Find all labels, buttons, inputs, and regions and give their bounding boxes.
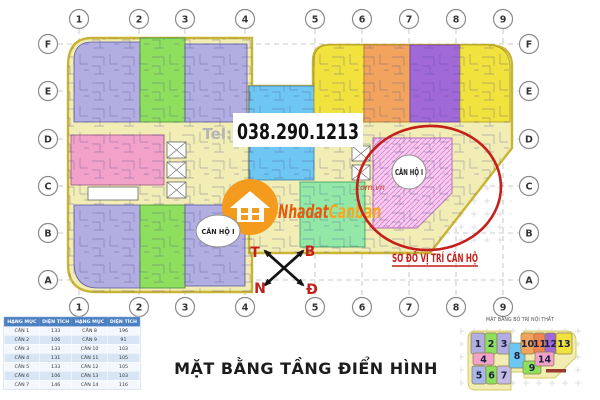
table-cell: 196 [107,326,140,335]
svg-text:6: 6 [488,370,495,381]
svg-text:B: B [525,228,532,239]
page-title: MẶT BẰNG TẦNG ĐIỂN HÌNH [174,356,438,378]
location-note: SƠ ĐỒ VỊ TRÍ CĂN HỘ [392,248,478,265]
svg-text:C: C [526,181,533,192]
svg-text:4: 4 [242,14,249,25]
table-cell: CĂN 7 [4,380,39,389]
mini-plan-unit: 13 [556,333,572,354]
svg-text:F: F [45,39,52,50]
table-cell: 146 [39,380,72,389]
table-cell: 131 [39,353,72,362]
table-cell: CĂN 13 [72,371,107,380]
svg-text:1: 1 [475,339,482,350]
table-row: CĂN 5133CĂN 12105 [4,362,140,371]
grid-row-label: E [520,82,539,101]
svg-text:3: 3 [182,14,189,25]
mini-plan-unit: 14 [535,352,554,366]
table-row: CĂN 3133CĂN 10103 [4,344,140,353]
svg-text:4: 4 [480,354,487,365]
mini-plan-unit: 6 [486,366,497,384]
svg-text:D: D [44,134,52,145]
compass-south-label: N [254,281,266,297]
table-cell: CĂN 8 [72,326,107,335]
grid-row-label: D [520,130,539,149]
table-cell: 133 [39,326,72,335]
compass-east-label: Đ [306,282,318,298]
mini-plan-unit: 4 [473,353,494,365]
table-header-cell: HẠNG MỤC [72,317,107,326]
grid-row-label: B [520,224,539,243]
mini-plan-title: MẶT BẰNG BỐ TRÍ NỘI THẤT [486,315,555,323]
grid-column-label: 3 [176,298,195,317]
table-cell: 103 [107,344,140,353]
svg-text:12: 12 [544,339,557,350]
svg-text:13: 13 [557,339,570,350]
wall-texture-left [68,38,252,292]
table-row: CĂN 6106CĂN 13103 [4,371,140,380]
mini-plan-unit: 2 [485,333,497,354]
svg-text:5: 5 [312,14,319,25]
table-row: CĂN 7146CĂN 14116 [4,380,140,389]
table-cell: 105 [107,353,140,362]
mini-plan-unit: 5 [472,366,486,384]
grid-column-label: 9 [494,298,513,317]
stair-core [88,187,138,200]
svg-text:A: A [525,275,533,286]
svg-text:9: 9 [500,14,507,25]
grid-column-label: 9 [494,10,513,29]
svg-text:5: 5 [312,302,319,313]
table-header-cell: DIỆN TÍCH [107,317,140,326]
svg-text:A: A [44,275,52,286]
grid-row-label: D [39,130,58,149]
svg-text:9: 9 [500,302,507,313]
grid-column-label: 2 [130,10,149,29]
svg-text:4: 4 [242,302,249,313]
table-cell: CĂN 10 [72,344,107,353]
svg-text:F: F [526,39,533,50]
grid-column-label: 6 [353,10,372,29]
svg-text:2: 2 [136,302,143,313]
svg-text:E: E [45,86,52,97]
svg-text:7: 7 [501,370,508,381]
grid-column-label: 6 [353,298,372,317]
svg-text:D: D [525,134,533,145]
grid-row-label: F [520,35,539,54]
table-cell: 116 [107,380,140,389]
apartment-label-left: CĂN HỘ I [196,215,240,247]
apartment-label-right: CĂN HỘ I [392,155,426,189]
table-cell: 91 [107,335,140,344]
grid-column-label: 7 [400,298,419,317]
svg-text:C: C [45,181,52,192]
grid-column-label: 1 [70,298,89,317]
table-cell: CĂN 12 [72,362,107,371]
table-cell: CĂN 1 [4,326,39,335]
grid-column-label: 5 [306,10,325,29]
table-row: CĂN 2106CĂN 991 [4,335,140,344]
tel-label: Tel: [202,125,232,143]
svg-text:1: 1 [76,14,83,25]
grid-column-label: 4 [236,10,255,29]
svg-text:9: 9 [529,363,536,374]
grid-column-label: 3 [176,10,195,29]
grid-row-label: B [39,224,58,243]
grid-column-label: 5 [306,298,325,317]
table-cell: CĂN 3 [4,344,39,353]
grid-column-label: 8 [447,10,466,29]
grid-column-label: 8 [447,298,466,317]
svg-text:14: 14 [538,354,552,365]
floor-plan-image: Tel: 038.290.1213 NhadatCanban .com.vn C… [0,0,600,400]
grid-row-label: E [39,82,58,101]
table-cell: CĂN 4 [4,353,39,362]
grid-row-label: F [39,35,58,54]
mini-plan-unit: 7 [497,366,511,384]
svg-text:CĂN HỘ I: CĂN HỘ I [202,227,235,236]
svg-text:3: 3 [182,302,189,313]
svg-text:2: 2 [136,14,143,25]
grid-row-label: A [520,271,539,290]
svg-text:1: 1 [76,302,83,313]
svg-text:6: 6 [359,302,366,313]
svg-text:5: 5 [476,370,483,381]
table-cell: 106 [39,371,72,380]
svg-text:8: 8 [514,351,521,362]
table-cell: CĂN 14 [72,380,107,389]
grid-row-label: C [520,177,539,196]
table-cell: CĂN 5 [4,362,39,371]
svg-text:CĂN HỘ I: CĂN HỘ I [395,168,423,177]
table-row: CĂN 4131CĂN 11105 [4,353,140,362]
table-cell: 106 [39,335,72,344]
mini-plan-unit: 12 [544,333,557,354]
grid-column-label: 1 [70,10,89,29]
table-cell: CĂN 2 [4,335,39,344]
area-table: HẠNG MỤCDIỆN TÍCHHẠNG MỤCDIỆN TÍCH CĂN 1… [4,317,140,390]
table-cell: 133 [39,344,72,353]
table-cell: CĂN 11 [72,353,107,362]
svg-text:7: 7 [406,302,413,313]
grid-row-label: C [39,177,58,196]
mini-plan-unit: 1 [471,333,485,354]
svg-text:6: 6 [359,14,366,25]
table-cell: 103 [107,371,140,380]
table-cell: 105 [107,362,140,371]
svg-text:8: 8 [453,14,460,25]
svg-text:2: 2 [488,339,495,350]
table-cell: CĂN 6 [4,371,39,380]
grid-column-label: 4 [236,298,255,317]
table-header-cell: HẠNG MỤC [4,317,39,326]
svg-text:8: 8 [453,302,460,313]
table-row: CĂN 1133CĂN 8196 [4,326,140,335]
table-cell: 133 [39,362,72,371]
grid-column-label: 7 [400,10,419,29]
table-cell: CĂN 9 [72,335,107,344]
compass-north-label: B [305,244,316,260]
svg-text:7: 7 [406,14,413,25]
grid-column-label: 2 [130,298,149,317]
svg-text:B: B [44,228,51,239]
grid-row-label: A [39,271,58,290]
table-header-cell: DIỆN TÍCH [39,317,72,326]
mini-plan-watermark-mark [546,369,566,373]
compass-west-label: T [250,245,260,261]
svg-text:3: 3 [501,339,508,350]
phone-number: 038.290.1213 [237,120,359,144]
svg-text:E: E [526,86,533,97]
